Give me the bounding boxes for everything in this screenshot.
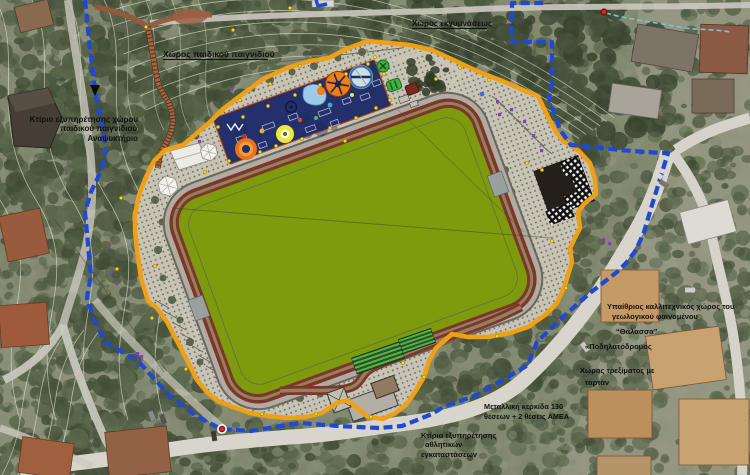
svg-text:«Ποδηλατόδρομος: «Ποδηλατόδρομος [585,342,652,351]
svg-text:Χώρος εκγυμνάσεως: Χώρος εκγυμνάσεως [412,19,492,28]
svg-text:Μεταλλική κερκίδα 130: Μεταλλική κερκίδα 130 [484,402,563,411]
svg-text:Χώρος παιδικού παιγνιδιού: Χώρος παιδικού παιγνιδιού [163,49,275,59]
svg-text:εγκαταστάσεων: εγκαταστάσεων [421,450,477,459]
svg-text:θέσεων + 2 θέσεις ΑΜΕΑ: θέσεων + 2 θέσεις ΑΜΕΑ [484,412,570,421]
svg-text:Υπαίθριος καλλιτεχνικός χώρος: Υπαίθριος καλλιτεχνικός χώρος του [607,302,735,311]
svg-text:Αναψυκτήριο: Αναψυκτήριο [87,134,138,143]
svg-text:Χώρος τρεξίματος με: Χώρος τρεξίματος με [580,366,655,375]
svg-text:αθλητικών: αθλητικών [425,440,462,449]
svg-text:“Θάλασσα”: “Θάλασσα” [616,327,658,336]
svg-text:ταρτάν: ταρτάν [585,378,609,387]
svg-text:Κτίρια εξυπηρέτησης: Κτίρια εξυπηρέτησης [421,431,497,440]
svg-text:γεωλογικού φαινομένου: γεωλογικού φαινομένου [612,312,698,321]
svg-text:παιδικού παιγνιδιού: παιδικού παιγνιδιού [60,124,137,133]
svg-text:Κτίριο εξυπηρέτησης χώρου: Κτίριο εξυπηρέτησης χώρου [30,115,139,124]
